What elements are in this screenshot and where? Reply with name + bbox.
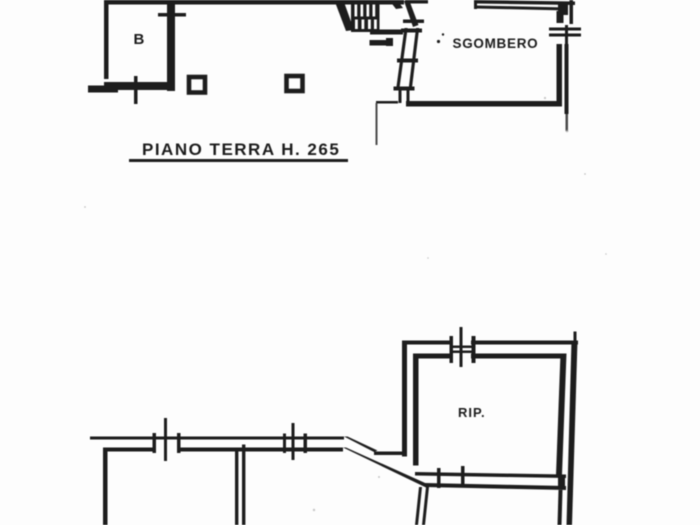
svg-text:SGOMBERO: SGOMBERO [453, 36, 539, 51]
svg-text:B: B [134, 31, 145, 48]
svg-text:PIANO TERRA H. 265: PIANO TERRA H. 265 [142, 140, 340, 159]
svg-text:RIP.: RIP. [458, 405, 486, 420]
